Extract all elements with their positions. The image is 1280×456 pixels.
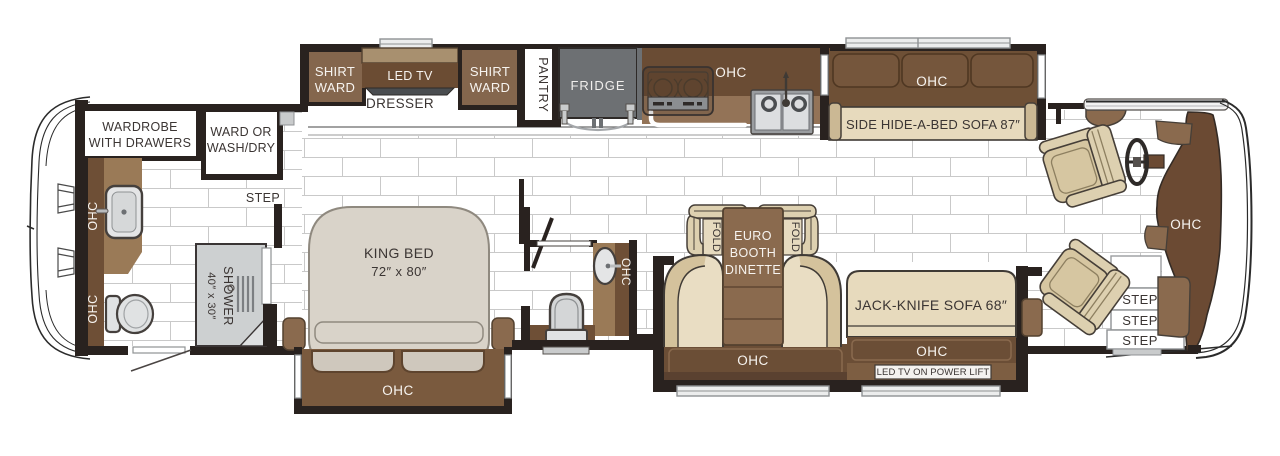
svg-text:EURO: EURO [734,229,772,243]
svg-text:STEP: STEP [246,191,280,205]
svg-text:STEP: STEP [1122,333,1158,348]
svg-text:STEP: STEP [1122,313,1158,328]
svg-text:LED TV ON POWER LIFT: LED TV ON POWER LIFT [877,367,990,378]
svg-text:DINETTE: DINETTE [725,263,781,277]
svg-text:BOOTH: BOOTH [730,246,776,260]
svg-text:OHC: OHC [86,294,100,323]
svg-text:OHC: OHC [715,65,747,80]
svg-text:SHIRT: SHIRT [470,64,510,79]
svg-text:STEP: STEP [1122,292,1158,307]
svg-text:40″ x 30″: 40″ x 30″ [205,272,217,319]
svg-text:OHC: OHC [619,258,633,286]
svg-text:OHC: OHC [382,383,414,398]
svg-text:SIDE HIDE-A-BED SOFA 87″: SIDE HIDE-A-BED SOFA 87″ [846,117,1020,132]
svg-text:WITH DRAWERS: WITH DRAWERS [89,136,191,150]
svg-text:OHC: OHC [916,74,948,89]
svg-text:WARD: WARD [315,80,355,95]
svg-text:WASH/DRY: WASH/DRY [207,141,276,155]
svg-text:KING BED: KING BED [364,245,434,261]
svg-text:FOLD: FOLD [789,222,801,253]
svg-text:WARDROBE: WARDROBE [102,120,178,134]
svg-text:WARD: WARD [470,80,510,95]
svg-text:DRESSER: DRESSER [366,96,434,111]
svg-text:OHC: OHC [916,344,948,359]
svg-text:FRIDGE: FRIDGE [570,78,625,93]
svg-text:PANTRY: PANTRY [536,57,550,113]
svg-text:OHC: OHC [737,353,769,368]
svg-text:FOLD: FOLD [710,222,722,253]
svg-text:SHOWER: SHOWER [221,266,235,326]
svg-text:OHC: OHC [1170,217,1202,232]
svg-text:72″ x 80″: 72″ x 80″ [371,264,426,279]
svg-text:WARD OR: WARD OR [210,125,271,139]
svg-text:SHIRT: SHIRT [315,64,355,79]
svg-text:LED TV: LED TV [387,69,433,83]
svg-text:JACK-KNIFE SOFA 68″: JACK-KNIFE SOFA 68″ [855,297,1007,313]
svg-text:OHC: OHC [86,201,100,230]
